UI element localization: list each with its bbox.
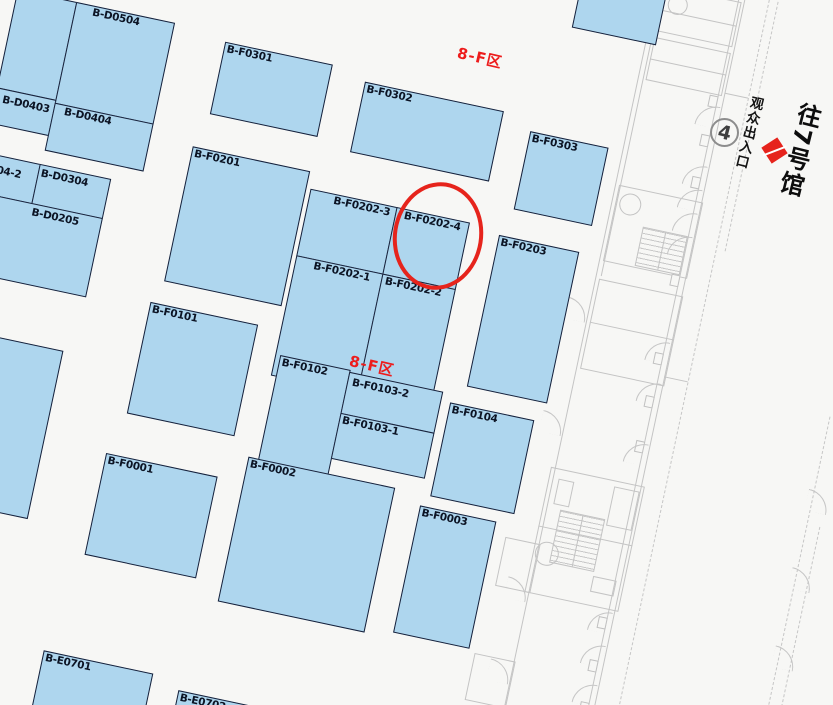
booth-B-F0301[interactable]: B-F0301 [210, 42, 333, 137]
zone-label-top: 8-F区 [455, 42, 504, 73]
booth-label: B-D0403 [1, 95, 51, 116]
door-arc-icon [677, 186, 703, 212]
booth-label: B-F0104 [450, 405, 498, 426]
booth-B-F0302[interactable]: B-F0302 [350, 82, 504, 182]
booth-B-F0003[interactable]: B-F0003 [393, 505, 496, 648]
booth-label: B-F0101 [151, 304, 199, 325]
booth-unlabeled[interactable] [572, 0, 668, 45]
service-room [580, 279, 683, 387]
booth-label: B-D0304 [40, 168, 90, 189]
wall-column [699, 134, 710, 148]
door-arc-icon [572, 681, 598, 705]
booth-B-F0104[interactable]: B-F0104 [430, 402, 534, 514]
corridor-connector [664, 376, 688, 382]
booth-label: B-F0001 [106, 456, 154, 477]
booth-label: B-F0202-3 [332, 196, 391, 219]
booth-label: B-E0701 [44, 653, 92, 674]
booth-label: B-F0003 [420, 508, 468, 529]
booth-label: B-F0303 [530, 134, 578, 155]
floorplan-rotated-layer: B-D0504 B-D0403 B-D0404 04-2 B-D0304 B-D… [0, 0, 815, 705]
booth-B-F0101[interactable]: B-F0101 [127, 302, 258, 436]
booth-B-E0701[interactable]: B-E0701 [24, 650, 153, 705]
expo-floorplan: B-D0504 B-D0403 B-D0404 04-2 B-D0304 B-D… [0, 0, 833, 705]
booth-B-F0002[interactable]: B-F0002 [218, 457, 395, 633]
booth-unlabeled[interactable] [0, 334, 63, 519]
booth-label: B-E0702 [179, 693, 227, 705]
booth-label: B-F0302 [365, 84, 413, 105]
door-arc-icon [804, 489, 830, 515]
corridor-connector [724, 93, 748, 99]
booth-cluster-f0103: B-F0103-2 B-F0103-1 [331, 372, 443, 479]
booth-cluster-d05: B-D0504 B-D0403 B-D0404 [0, 0, 175, 172]
door-arc-icon [682, 162, 708, 188]
booth-cluster-d03: 04-2 B-D0304 B-D0205 [0, 139, 111, 297]
booth-label: B-F0201 [193, 149, 241, 170]
booth-B-F0001[interactable]: B-F0001 [85, 453, 218, 578]
gate-number: 4 [715, 120, 733, 145]
booth-B-F0303[interactable]: B-F0303 [514, 131, 609, 226]
booth-label: B-F0203 [499, 237, 547, 258]
booth-B-F0201[interactable]: B-F0201 [164, 146, 310, 306]
wall-column [669, 274, 680, 288]
door-arc-icon [580, 642, 606, 668]
booth-label: 04-2 [0, 165, 22, 182]
road-dashed-line [751, 527, 821, 705]
booth-B-F0203[interactable]: B-F0203 [467, 235, 579, 404]
booth-label: B-F0301 [225, 44, 273, 65]
booth-label: B-D0504 [91, 8, 141, 29]
door-arc-icon [587, 608, 613, 634]
booth-B-E0702[interactable]: B-E0702 [163, 690, 269, 705]
